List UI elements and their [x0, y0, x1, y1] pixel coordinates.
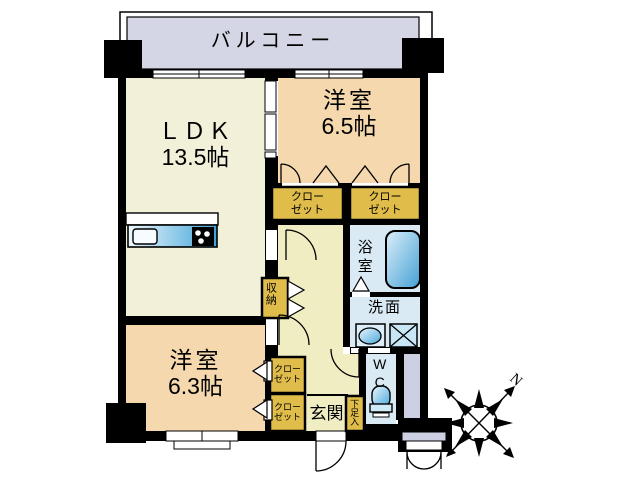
entry-alcove	[402, 432, 446, 450]
door-arc-entrance	[316, 441, 346, 471]
floor-plan: バルコニー ＬＤＫ 13.5帖 洋室 6.5帖 洋室 6.3帖 クロー ゼット …	[0, 0, 640, 480]
kitchen-counter	[126, 213, 218, 247]
bedroom-63-label: 洋室 6.3帖	[126, 348, 265, 400]
room-ldk	[126, 78, 265, 316]
hallway-nook	[343, 354, 361, 396]
washroom-label: 洗面	[352, 300, 418, 317]
washing-machine-icon	[390, 324, 417, 347]
entrance-label: 玄関	[305, 404, 348, 423]
double-door-arcs	[407, 452, 441, 469]
bedroom-65-label: 洋室 6.5帖	[278, 88, 420, 140]
ldk-label: ＬＤＫ 13.5帖	[126, 119, 265, 171]
opening-bedroom63	[266, 315, 277, 345]
shoe-cabinet-label: 下足入	[349, 399, 359, 426]
balcony-label: バルコニー	[127, 30, 419, 52]
opening-ldk-hall	[266, 230, 277, 260]
bathtub-icon	[386, 231, 420, 288]
closet-3-label: クロー ゼット	[270, 364, 305, 385]
stove-icon	[192, 227, 214, 246]
opening-wc	[368, 348, 390, 353]
sliding-door-panels	[265, 81, 276, 158]
kitchen-sink-icon	[133, 229, 157, 244]
opening-entrance-door	[316, 431, 346, 441]
wc-label: WC	[371, 356, 387, 392]
compass-rose	[444, 386, 515, 458]
closet-4-label: クロー ゼット	[270, 402, 305, 423]
opening-bath	[352, 292, 370, 297]
closet-1-label: クロー ゼット	[272, 191, 343, 216]
closet-2-label: クロー ゼット	[350, 191, 420, 216]
opening-washroom	[351, 348, 359, 353]
storage-label: 収納	[264, 282, 276, 306]
pipe-space	[404, 354, 420, 420]
washbasin-icon	[356, 324, 385, 347]
bath-label: 浴室	[355, 239, 372, 277]
pillar-bottom-left	[106, 403, 146, 443]
